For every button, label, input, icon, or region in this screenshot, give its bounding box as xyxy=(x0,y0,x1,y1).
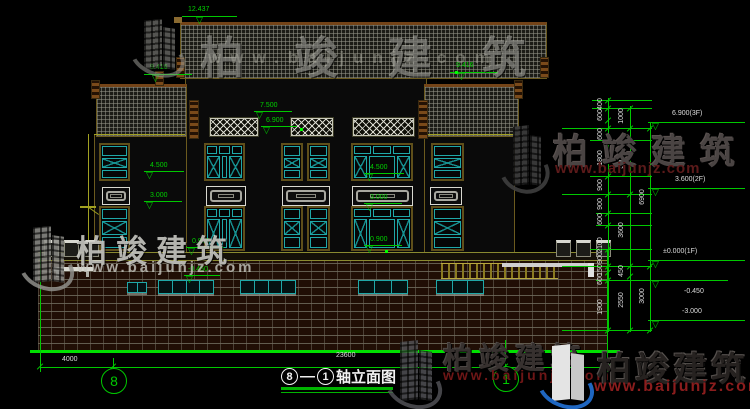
window-narrow xyxy=(307,143,330,181)
osnap-dot xyxy=(300,128,303,131)
facade-elevation-marker-line xyxy=(182,16,237,17)
parapet-pier xyxy=(576,240,591,257)
right-elevation-marker-line xyxy=(648,188,745,189)
facade-elevation-marker-triangle-icon: ▽ xyxy=(366,245,373,253)
dim-label-chain2: 450 xyxy=(618,263,626,279)
watermark-url-top: www.baijunjz.com xyxy=(208,48,499,68)
facade-elevation-marker-triangle-icon: ▽ xyxy=(146,201,153,209)
dim-label-chain2: 2550 xyxy=(618,292,626,308)
facade-elevation-marker-text: 3.000 xyxy=(370,194,388,202)
watermark-logo-bottom-right xyxy=(540,342,594,408)
watermark-url-left: www.baijunjz.com xyxy=(77,259,254,276)
right-elevation-marker-text: 6.900(3F) xyxy=(672,110,702,118)
window-large xyxy=(351,143,413,181)
eave-post xyxy=(91,80,100,99)
basement-window xyxy=(127,282,147,293)
dim-label-chain1: 600 xyxy=(597,211,605,227)
window-narrow xyxy=(281,143,303,181)
facade-elevation-marker-text: 4.500 xyxy=(370,164,388,172)
right-elevation-marker-text: -0.450 xyxy=(684,288,704,296)
right-elevation-marker-triangle-icon: ▽ xyxy=(652,320,659,328)
dim-label-chain1: 600 xyxy=(597,271,605,287)
facade-elevation-marker-triangle-icon: ▽ xyxy=(366,203,373,211)
watermark-logo-left xyxy=(22,224,74,290)
facade-elevation-marker-text: 12.437 xyxy=(188,6,209,14)
lattice-panel xyxy=(210,118,258,136)
drawing-title: 8 — 1 轴立面图 xyxy=(281,366,396,387)
right-elevation-marker-triangle-icon: ▽ xyxy=(652,280,659,288)
bottom-dim-text: 4000 xyxy=(62,356,78,364)
facade-elevation-marker-triangle-icon: ▽ xyxy=(186,275,193,283)
eave-post xyxy=(418,100,428,139)
dim-label-chain2: 3600 xyxy=(618,222,626,238)
dim-label-chain1: 1900 xyxy=(597,299,605,315)
right-elevation-marker-triangle-icon: ▽ xyxy=(652,188,659,196)
title-axis-from-circle: 8 xyxy=(281,368,298,385)
bottom-dim-text: 23600 xyxy=(336,352,355,360)
facade-elevation-marker-text: 7.500 xyxy=(260,102,278,110)
basement-window xyxy=(240,280,296,294)
axis-bubble-8-label: 8 xyxy=(110,373,118,389)
axis-bubble-8: 8 xyxy=(101,368,127,394)
watermark-logo-right xyxy=(503,123,549,193)
right-elevation-marker-text: ±0.000(1F) xyxy=(663,248,697,256)
dim-label-chain3: 6900 xyxy=(639,189,647,205)
window-narrow xyxy=(307,206,330,251)
window-narrow xyxy=(431,206,464,251)
facade-elevation-marker-triangle-icon: ▽ xyxy=(263,126,270,134)
decorative-panel xyxy=(282,186,330,206)
decorative-panel xyxy=(206,186,246,206)
dim-label-chain1: 900 xyxy=(597,177,605,193)
right-elevation-marker-text: -3.000 xyxy=(682,308,702,316)
facade-elevation-marker-triangle-icon: ▽ xyxy=(366,173,373,181)
facade-elevation-marker-text: 6.900 xyxy=(266,117,284,125)
window-narrow xyxy=(431,143,464,181)
title-underline xyxy=(281,387,393,390)
facade-elevation-marker-text: 3.000 xyxy=(150,192,168,200)
osnap-dot xyxy=(385,250,388,253)
title-underline-2 xyxy=(281,392,393,393)
watermark-url-right: www.baijunjz.com xyxy=(555,160,700,177)
title-separator: — xyxy=(300,368,315,385)
facade-elevation-marker-triangle-icon: ▽ xyxy=(256,111,263,119)
lattice-panel xyxy=(353,118,414,136)
lattice-panel xyxy=(291,118,333,136)
facade-elevation-marker-text: 0.900 xyxy=(370,236,388,244)
facade-elevation-marker-triangle-icon: ▽ xyxy=(146,171,153,179)
watermark-logo-bottom-center xyxy=(388,338,442,408)
cad-elevation-drawing: ▽12.437▽9.416▽9.416▽7.500▽6.900▽4.500▽4.… xyxy=(0,0,750,409)
right-elevation-marker-line xyxy=(648,320,745,321)
right-elevation-marker-line xyxy=(648,122,745,123)
window-large xyxy=(204,143,245,181)
decorative-panel xyxy=(430,187,462,205)
parapet-pier xyxy=(556,240,571,257)
eave-post xyxy=(189,100,199,139)
dim-label-chain2: 1000 xyxy=(618,108,626,124)
right-elevation-marker-line xyxy=(648,260,745,261)
dim-label-chain3: 3000 xyxy=(639,288,647,304)
right-elevation-marker-line xyxy=(648,280,728,281)
title-axis-to-circle: 1 xyxy=(317,368,334,385)
facade-elevation-marker-text: 4.500 xyxy=(150,162,168,170)
watermark-logo-top-left xyxy=(133,18,185,76)
dim-label-chain1: 600 xyxy=(597,107,605,123)
window-narrow xyxy=(99,143,130,181)
right-elevation-marker-text: 3.600(2F) xyxy=(675,176,705,184)
decorative-panel xyxy=(102,187,130,205)
watermark-url-bottom-right: www.baijunjz.com xyxy=(594,378,750,396)
basement-window xyxy=(436,280,484,294)
dim-label-chain1: 900 xyxy=(597,196,605,212)
basement-window xyxy=(358,280,408,294)
window-narrow xyxy=(281,206,303,251)
